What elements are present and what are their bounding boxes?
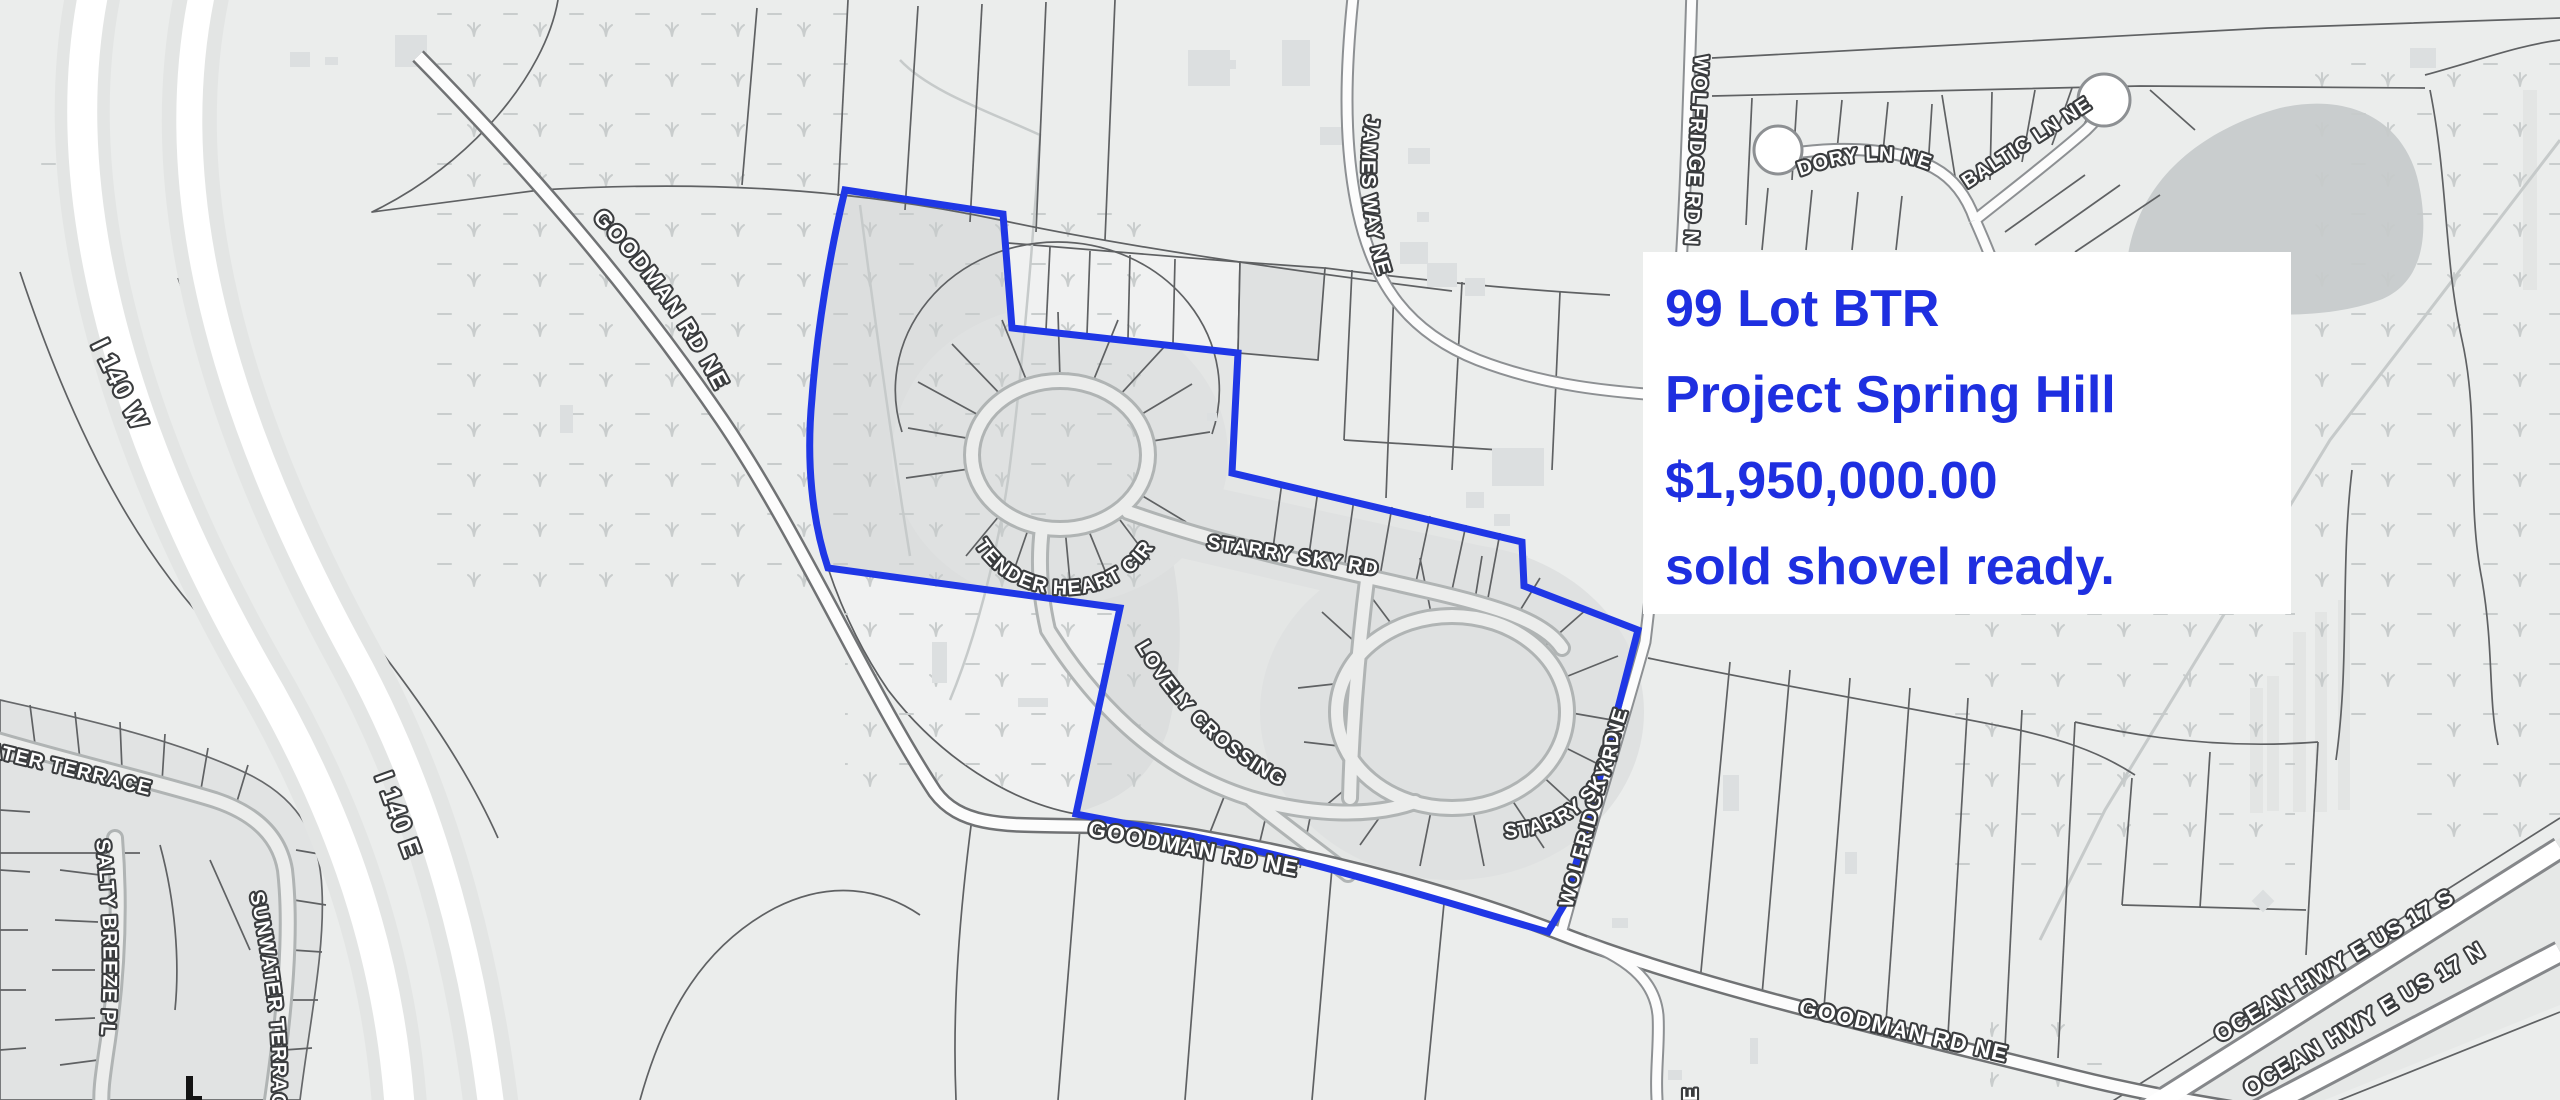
annotation-line-2: Project Spring Hill (1665, 352, 2291, 438)
annotation-line-1: 99 Lot BTR (1665, 266, 2291, 352)
annotation-box: 99 Lot BTR Project Spring Hill $1,950,00… (1643, 252, 2291, 614)
annotation-line-3: $1,950,000.00 (1665, 438, 2291, 524)
road-label-partial: E (1680, 1087, 1702, 1100)
map-screenshot: I 140 W I 140 E GOODMAN RD NE GOODMAN RD… (0, 0, 2560, 1100)
annotation-line-4: sold shovel ready. (1665, 524, 2291, 610)
